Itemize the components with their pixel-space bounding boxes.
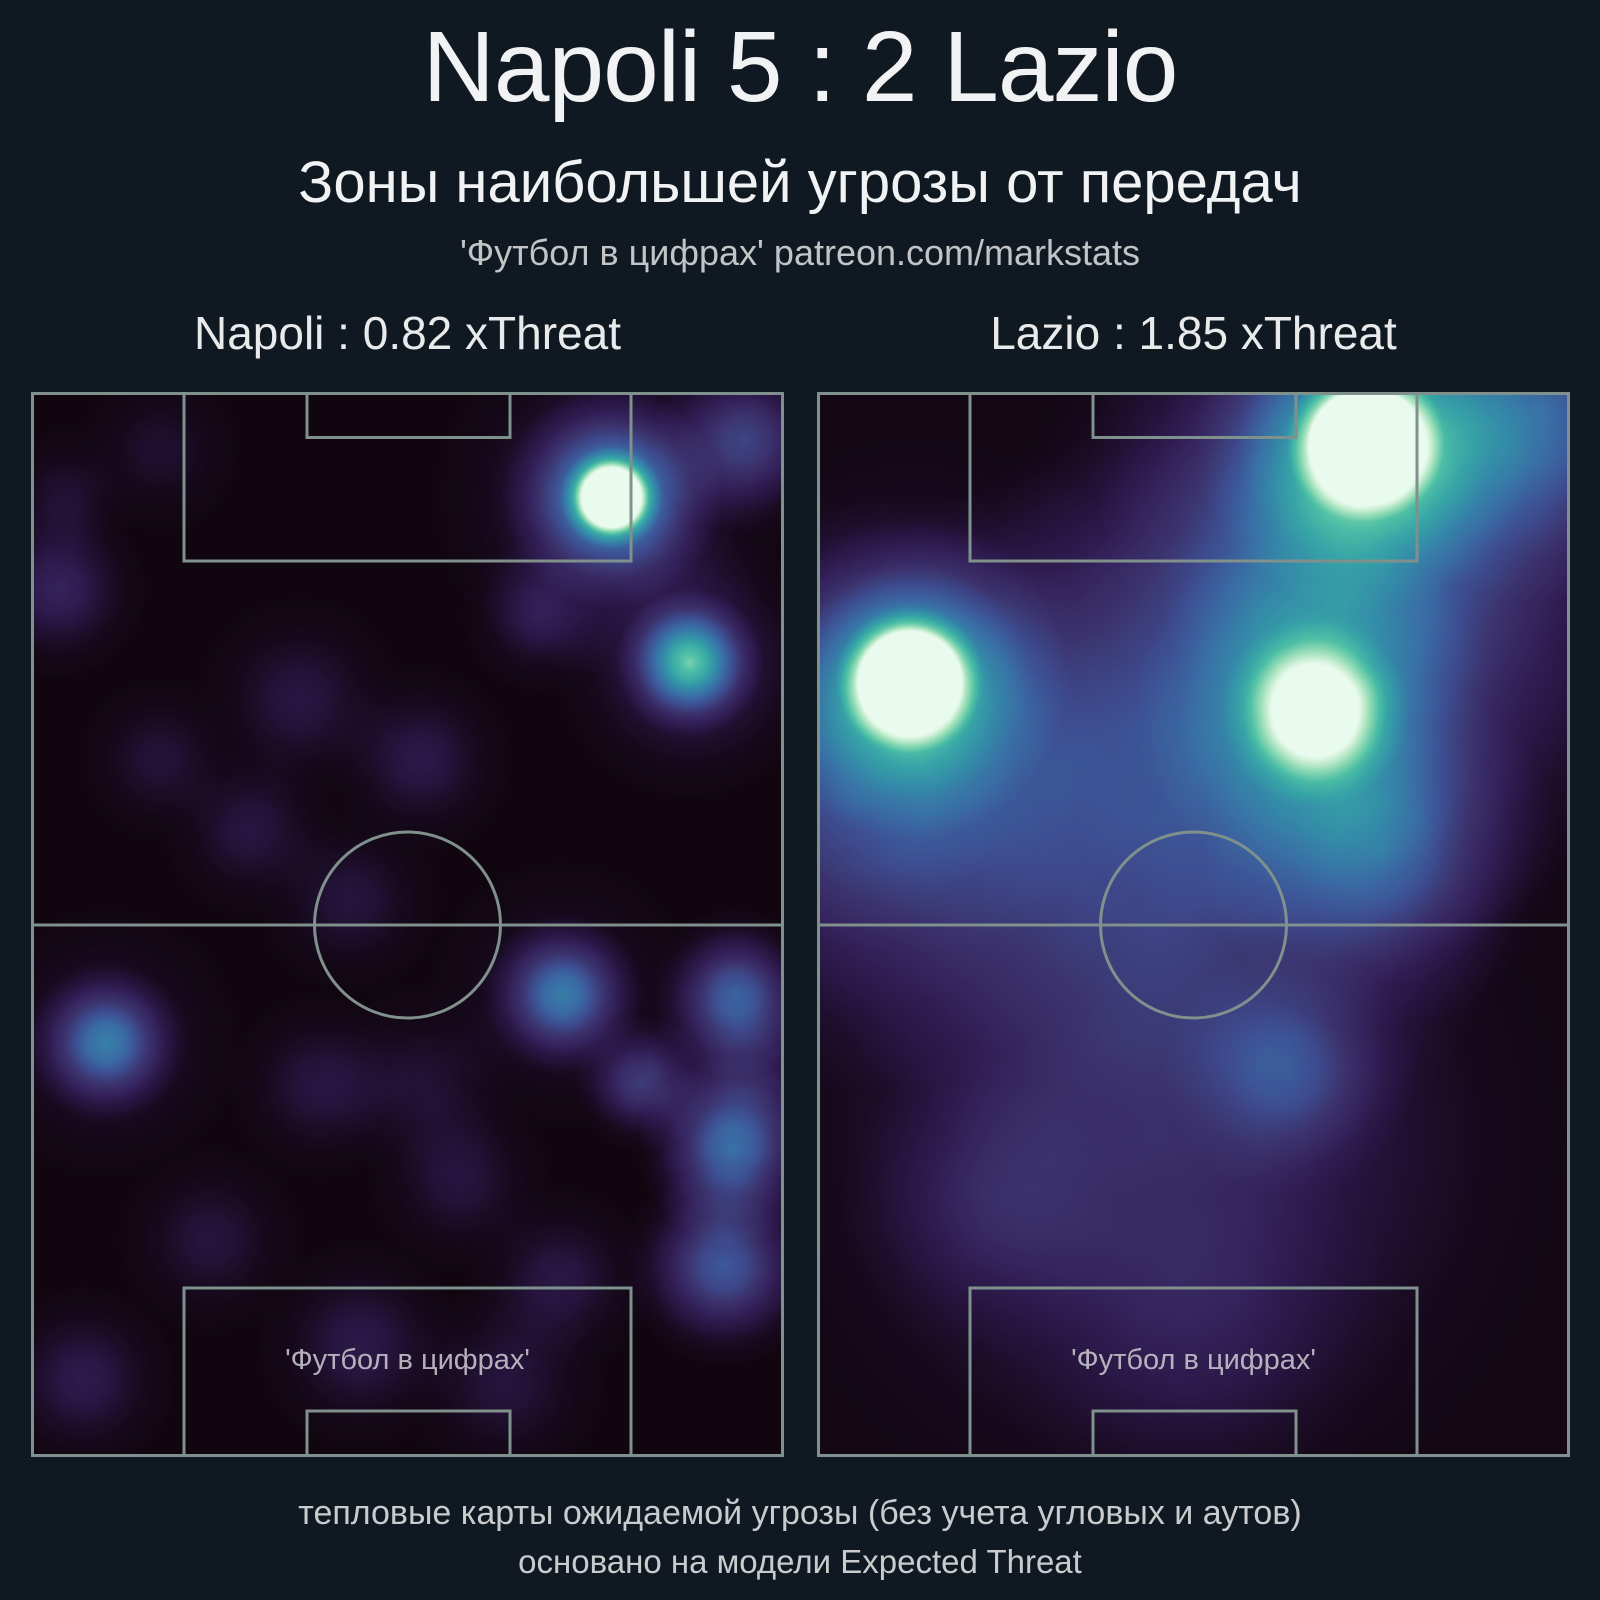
footer-note-2: основано на модели Expected Threat (0, 1543, 1600, 1581)
footer-note-1: тепловые карты ожидаемой угрозы (без уче… (0, 1494, 1600, 1533)
watermark-napoli: 'Футбол в цифрах' (31, 1344, 784, 1377)
pitch-lazio: 'Футбол в цифрах' (817, 392, 1570, 1457)
attribution-line: 'Футбол в цифрах' patreon.com/markstats (0, 232, 1600, 274)
watermark-lazio: 'Футбол в цифрах' (817, 1344, 1570, 1377)
pitch-lines-lazio (817, 392, 1570, 1457)
panel-title-lazio: Lazio : 1.85 xThreat (817, 306, 1570, 366)
infographic: Napoli 5 : 2 Lazio Зоны наибольшей угроз… (0, 0, 1600, 1600)
page-subtitle: Зоны наибольшей угрозы от передач (0, 148, 1600, 218)
pitch-napoli: 'Футбол в цифрах' (31, 392, 784, 1457)
panel-title-napoli: Napoli : 0.82 xThreat (31, 306, 784, 366)
pitch-lines-napoli (31, 392, 784, 1457)
page-title: Napoli 5 : 2 Lazio (0, 10, 1600, 125)
